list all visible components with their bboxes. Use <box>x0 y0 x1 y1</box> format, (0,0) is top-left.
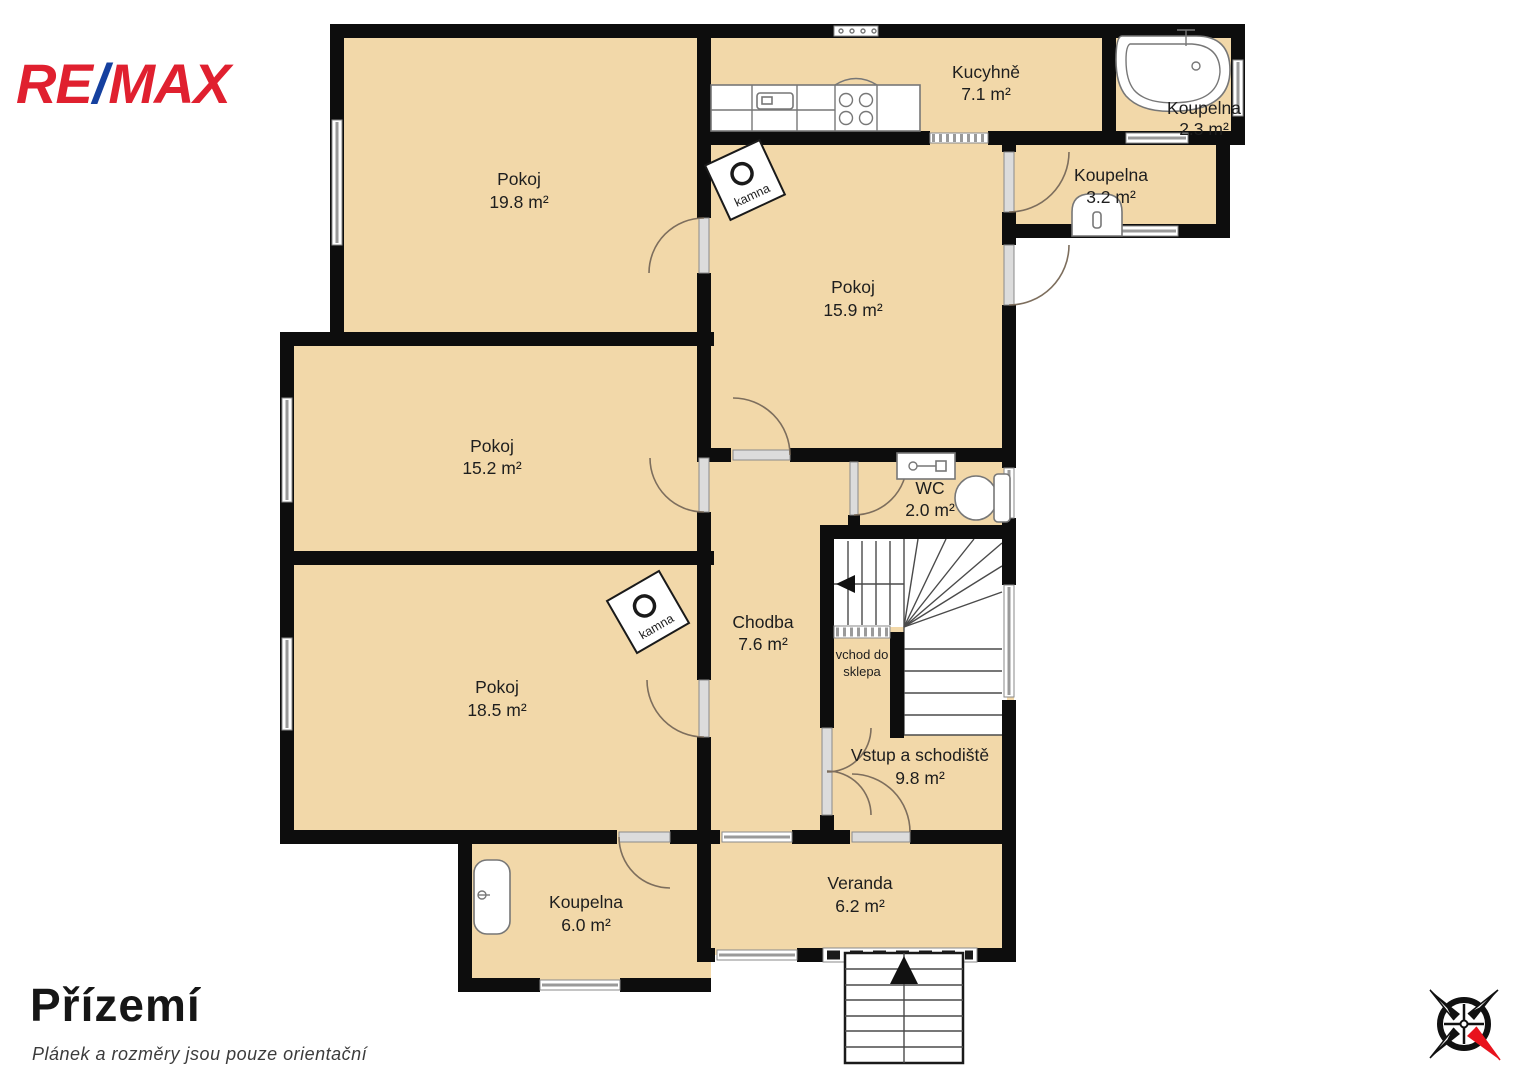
basement-entrance-label: vchod do <box>836 647 889 662</box>
stair-upper-flight <box>834 539 1007 627</box>
wc-toilet-icon <box>955 474 1010 522</box>
room-label: Veranda <box>827 873 892 893</box>
room-area: 15.2 m² <box>462 458 521 478</box>
room-area: 7.1 m² <box>961 84 1011 104</box>
window <box>282 638 292 730</box>
floorplan-drawing: kamna kamna Pokoj 19.8 m² Kucyhně 7.1 m²… <box>0 0 1527 1080</box>
floor-title: Přízemí <box>30 978 201 1032</box>
window <box>540 980 620 990</box>
room-label: Pokoj <box>470 436 514 456</box>
window <box>1004 585 1014 697</box>
room-label: Pokoj <box>475 677 519 697</box>
window <box>282 398 292 502</box>
window <box>722 832 792 842</box>
room-area: 7.6 m² <box>738 634 788 654</box>
kitchen-sink-icon <box>757 93 793 109</box>
room-area: 9.8 m² <box>895 768 945 788</box>
room-area: 2.3 m² <box>1179 119 1229 139</box>
bathtub-icon <box>474 860 510 934</box>
room-area: 3.2 m² <box>1086 187 1136 207</box>
window <box>1120 226 1178 236</box>
room-label: Vstup a schodiště <box>851 745 989 765</box>
floor-disclaimer: Plánek a rozměry jsou pouze orientační <box>32 1044 367 1065</box>
room-label: Koupelna <box>1167 98 1241 118</box>
room-label: Kucyhně <box>952 62 1020 82</box>
room-label: Koupelna <box>549 892 623 912</box>
floorplan-page: RE/MAX <box>0 0 1527 1080</box>
room-area: 6.2 m² <box>835 896 885 916</box>
room-label: WC <box>915 478 944 498</box>
stair-lower-flight <box>904 627 1007 735</box>
door-exterior <box>1004 245 1069 305</box>
room-area: 2.0 m² <box>905 500 955 520</box>
room-label: Chodba <box>732 612 794 632</box>
room-area: 6.0 m² <box>561 915 611 935</box>
window <box>332 120 342 245</box>
room-label: Pokoj <box>497 169 541 189</box>
exterior-stairs <box>845 953 963 1063</box>
wc-sink-icon <box>897 453 955 479</box>
passage-hatch <box>930 133 988 143</box>
window <box>717 950 797 960</box>
room-area: 15.9 m² <box>823 300 882 320</box>
room-label: Koupelna <box>1074 165 1148 185</box>
room-area: 19.8 m² <box>489 192 548 212</box>
basement-entrance-label: sklepa <box>843 664 881 679</box>
compass-rose-icon <box>1430 990 1500 1060</box>
room-area: 18.5 m² <box>467 700 526 720</box>
basement-door-hatch <box>834 626 890 638</box>
room-label: Pokoj <box>831 277 875 297</box>
